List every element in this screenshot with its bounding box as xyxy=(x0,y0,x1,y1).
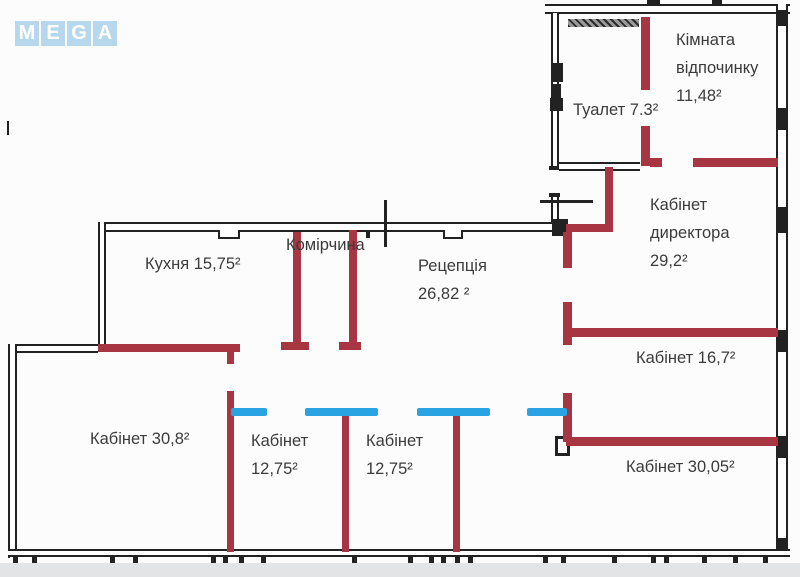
room-label-director-office: Кабінет директора 29,2² xyxy=(650,191,730,275)
logo-letter-tile: E xyxy=(41,21,65,46)
pantry-right-wall-foot xyxy=(339,342,361,350)
section-marker xyxy=(540,200,593,203)
toilet-bottom-wall xyxy=(559,162,640,171)
partition-toilet-restroom xyxy=(641,17,650,90)
room-name: Кабінет xyxy=(366,427,423,455)
room-name: Кімната xyxy=(676,26,758,54)
section-marker xyxy=(384,200,387,247)
wall-tick xyxy=(366,230,370,238)
window-mullion xyxy=(777,436,787,458)
room-name: Кухня 15,75² xyxy=(145,250,241,278)
room-label-kitchen: Кухня 15,75² xyxy=(145,250,241,278)
office30-05-top-wall xyxy=(566,437,778,446)
door-threshold xyxy=(443,230,463,239)
glass-partition xyxy=(527,408,567,416)
room-label-office-12-75-a: Кабінет 12,75² xyxy=(251,427,308,483)
room-name: Комірчина xyxy=(286,231,365,259)
room-area: 11,48² xyxy=(676,82,758,110)
room-label-office-30-05: Кабінет 30,05² xyxy=(626,453,735,481)
room-area: 29,2² xyxy=(650,247,730,275)
window-mullion xyxy=(777,10,787,26)
exterior-wall-right xyxy=(776,4,788,556)
logo-letter-tile: M xyxy=(15,21,39,46)
window-mullion xyxy=(777,207,787,233)
exterior-wall-top xyxy=(545,4,790,14)
door-frame xyxy=(549,193,560,197)
office30-8-top-wall xyxy=(8,344,98,353)
room-label-office-16-7: Кабінет 16,7² xyxy=(636,344,735,372)
partition-toilet-restroom xyxy=(641,126,650,166)
glass-partition xyxy=(231,408,267,416)
window-mullion xyxy=(777,108,787,130)
floor-plan: M E G A xyxy=(0,0,800,577)
room-name: Туалет 7.3² xyxy=(573,96,658,124)
room-name: Кабінет xyxy=(251,427,308,455)
room-name: Кабінет 30,05² xyxy=(626,453,735,481)
plumbing-fixture xyxy=(551,84,561,98)
office16-7-top-wall xyxy=(566,328,778,337)
reception-right-wall xyxy=(563,232,572,268)
room-name: директора xyxy=(650,219,730,247)
room-name: Рецепція xyxy=(418,252,487,280)
wall-tick xyxy=(7,121,9,135)
vent-shaft xyxy=(568,19,639,27)
plumbing-fixture xyxy=(551,63,563,82)
director-left-wall xyxy=(605,167,613,229)
kitchen-bottom-wall xyxy=(98,344,240,352)
room-name: відпочинку xyxy=(676,54,758,82)
glass-partition xyxy=(417,408,490,416)
room-name: Кабінет xyxy=(650,191,730,219)
wall-tick xyxy=(647,0,660,5)
room-label-toilet: Туалет 7.3² xyxy=(573,96,658,124)
kitchen-left-wall xyxy=(98,222,106,348)
room-area: 26,82 ² xyxy=(418,280,487,308)
reception-right-wall xyxy=(563,302,572,345)
exterior-wall-bottom xyxy=(8,549,790,557)
restroom-bottom-wall xyxy=(650,158,662,167)
plumbing-fixture xyxy=(550,98,563,111)
room-label-office-30-8: Кабінет 30,8² xyxy=(90,425,189,453)
pantry-left-wall-foot xyxy=(281,342,309,350)
room-area: 12,75² xyxy=(366,455,423,483)
room-name: Кабінет 30,8² xyxy=(90,425,189,453)
corridor-right-wall xyxy=(563,393,572,442)
logo-letter-tile: A xyxy=(93,21,117,46)
wall-tick xyxy=(712,0,722,5)
exterior-wall-left xyxy=(8,344,17,558)
director-left-wall xyxy=(566,224,613,232)
room-area: 12,75² xyxy=(251,455,308,483)
glass-partition xyxy=(305,408,378,416)
footer-strip xyxy=(0,563,800,577)
office12-75-divider-wall xyxy=(342,412,349,552)
kitchen-bottom-wall xyxy=(227,344,234,364)
office12-75b-right-wall xyxy=(453,412,460,552)
room-label-reception: Рецепція 26,82 ² xyxy=(418,252,487,308)
logo-letter-tile: G xyxy=(67,21,91,46)
room-name: Кабінет 16,7² xyxy=(636,344,735,372)
room-label-rest-room: Кімната відпочинку 11,48² xyxy=(676,26,758,110)
room-label-pantry: Комірчина xyxy=(286,231,365,259)
mega-logo: M E G A xyxy=(15,21,117,46)
door-threshold xyxy=(218,230,240,239)
window-mullion xyxy=(777,330,787,352)
restroom-bottom-wall xyxy=(693,158,778,167)
room-label-office-12-75-b: Кабінет 12,75² xyxy=(366,427,423,483)
